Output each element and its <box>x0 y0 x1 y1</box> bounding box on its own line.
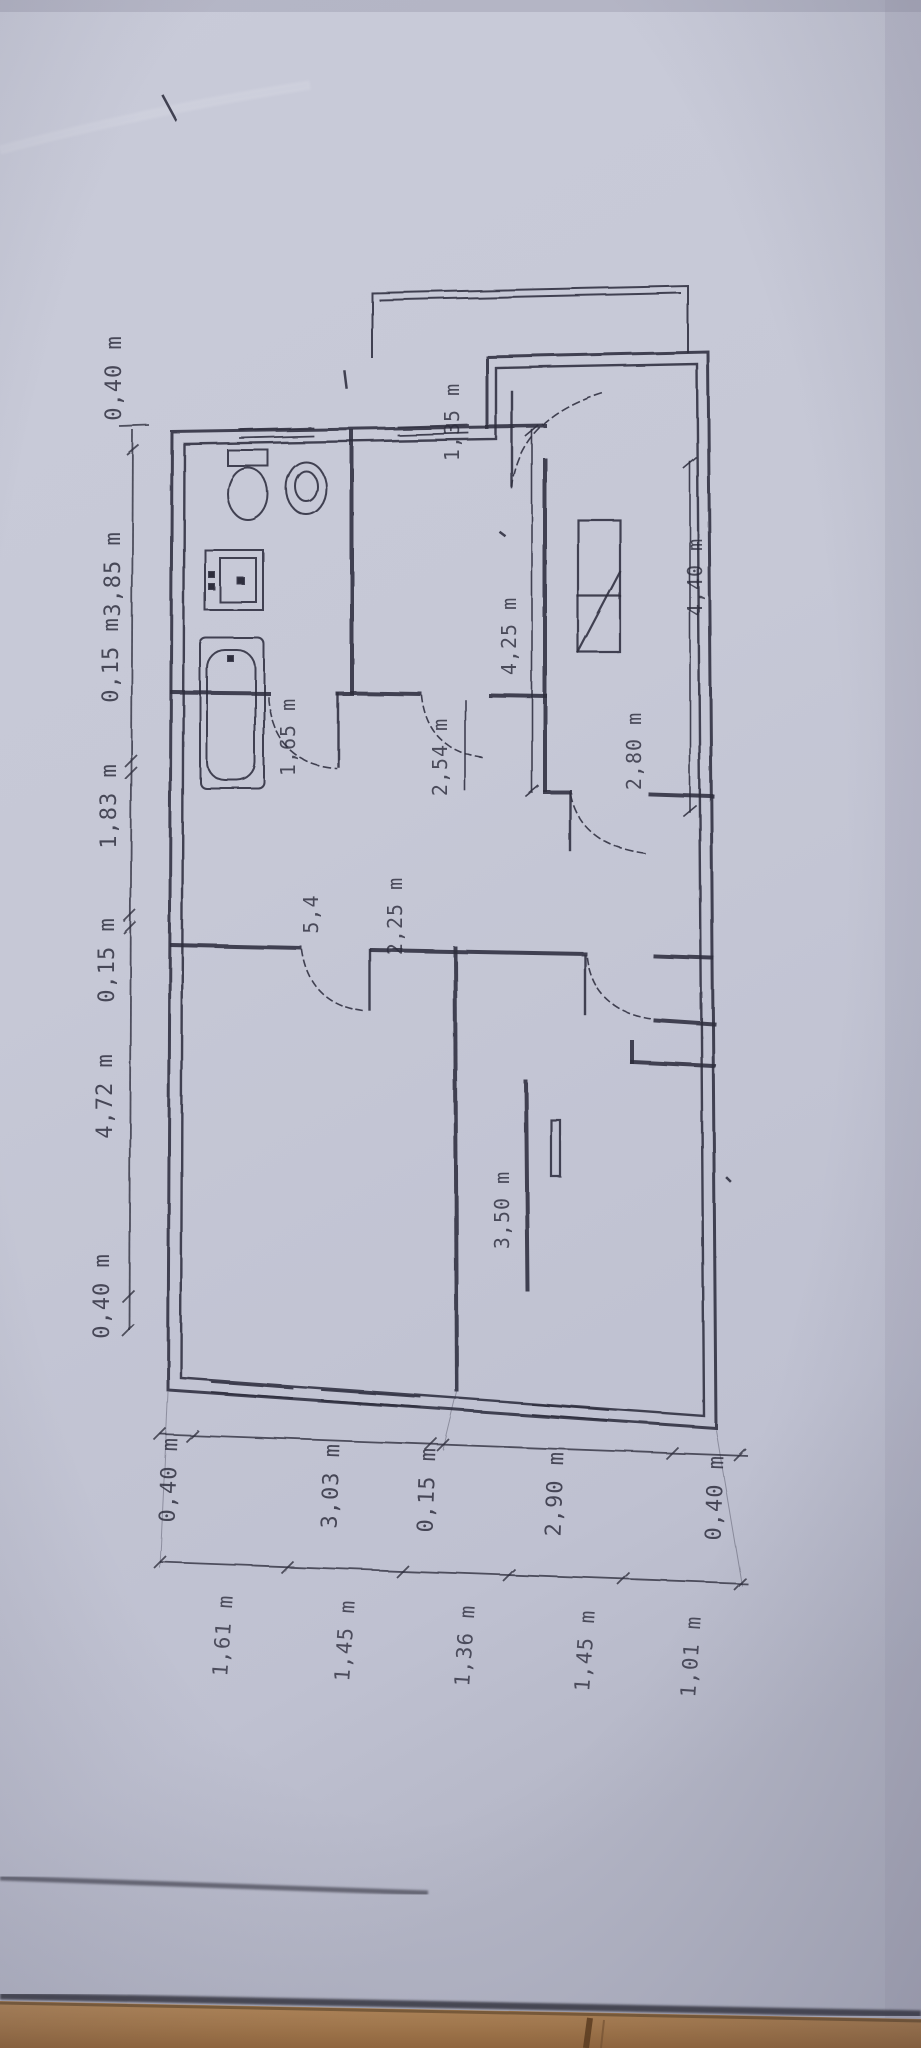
floor-plan-svg: 0,40 m 3,85 m 0,15 m 1,83 m 0,15 m 4,72 … <box>0 0 921 2048</box>
photo-vignette <box>0 0 921 2048</box>
floor-plan-photo: 0,40 m 3,85 m 0,15 m 1,83 m 0,15 m 4,72 … <box>0 0 921 2048</box>
